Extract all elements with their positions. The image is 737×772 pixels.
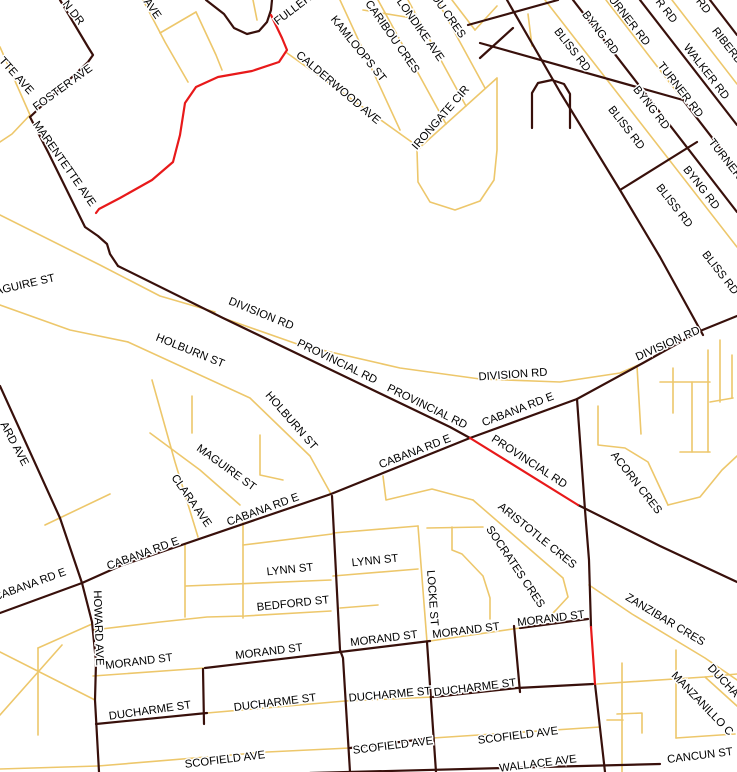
street-label: LOCKE ST <box>424 570 440 627</box>
street-label: FOSTER AVE <box>31 62 95 113</box>
road-u-inner <box>253 0 257 20</box>
road-clara-spur <box>45 494 110 525</box>
street-label: SCOFIELD AVE <box>184 749 266 771</box>
road-acorn-k <box>710 398 733 402</box>
street-label: PROVINCIAL RD <box>385 382 469 431</box>
street-label: MARENTETTE AVE <box>30 119 98 209</box>
street-label: DIVISION RD <box>227 295 296 332</box>
street-label: CLARA AVE <box>169 472 214 529</box>
street-label: OU CRES <box>428 0 468 41</box>
road-u-stub <box>532 80 570 128</box>
street-label: BLISS RD <box>551 26 592 74</box>
road-cabana-stub <box>383 476 473 500</box>
street-label: RIBERD <box>709 25 737 66</box>
road-perp-1 <box>468 0 558 25</box>
road-howard-n <box>0 386 82 583</box>
map-canvas[interactable]: N DRAVETTE AVEFOSTER AVEMARENTETTE AVEFU… <box>0 0 737 772</box>
street-label: CABANA RD E <box>377 433 453 472</box>
street-label: DUCHARME ST <box>348 685 432 704</box>
road-conn-e <box>427 527 483 528</box>
road-red-fuller <box>96 15 287 213</box>
street-label: LYNN ST <box>266 562 314 579</box>
street-label: PROVINCIAL RD <box>489 433 569 491</box>
street-label: BLISS RD <box>653 182 694 230</box>
road-provincial-se <box>578 505 737 582</box>
road-holburn-s-vert <box>332 496 350 772</box>
road-lynn2 <box>333 569 418 576</box>
street-label: MORAND ST <box>105 652 174 672</box>
road-bl-diag2 <box>0 645 62 715</box>
road-socrates <box>452 527 490 619</box>
road-wallace <box>310 764 660 772</box>
road-acorn-b <box>668 456 737 505</box>
street-label: AGUIRE ST <box>0 272 56 297</box>
road-vert-203 <box>203 669 204 724</box>
street-label: BYNG RD <box>579 9 620 57</box>
street-label: WALLACE AVE <box>499 753 578 772</box>
road-stub-642 <box>617 713 642 733</box>
labels-layer: N DRAVETTE AVEFOSTER AVEMARENTETTE AVEFU… <box>0 0 737 772</box>
street-label: DUCHARME ST <box>433 677 517 699</box>
street-label: BLISS RD <box>605 104 646 152</box>
street-label: SCOFIELD AVE <box>477 725 559 747</box>
road-scofield-ww <box>0 766 98 769</box>
street-label: CABANA RD E <box>105 535 181 572</box>
map-viewport[interactable]: N DRAVETTE AVEFOSTER AVEMARENTETTE AVEFU… <box>0 0 737 772</box>
road-division-provincial <box>118 266 470 438</box>
street-label: BEDFORD ST <box>256 594 330 614</box>
road-byng-conn <box>620 142 697 190</box>
street-label: DUCHARME ST <box>233 692 317 714</box>
road-lynn1 <box>186 580 331 586</box>
street-label: CABANA RD E <box>225 491 301 528</box>
street-label: MORAND ST <box>432 621 501 641</box>
street-label: MAGUIRE ST <box>194 442 258 493</box>
road-tl-conn <box>160 12 196 33</box>
road-bl-diag3 <box>38 624 92 648</box>
road-fuller-u <box>206 0 272 34</box>
street-label: AVE <box>141 0 164 22</box>
road-boundary <box>507 0 703 335</box>
road-maguire-w2 <box>0 305 128 342</box>
street-label: TURNER <box>706 137 737 181</box>
road-vert-grand-n <box>577 399 591 627</box>
road-tl-diag2 <box>196 12 222 70</box>
street-label: CANCUN ST <box>667 746 734 766</box>
street-label: LYNN ST <box>351 553 399 570</box>
road-stub-260 <box>260 435 283 480</box>
street-label: HOLBURN ST <box>263 390 320 453</box>
street-label: CABANA RD E <box>0 566 68 603</box>
road-clara <box>152 380 198 537</box>
street-label: MORAND ST <box>517 609 586 629</box>
street-label: RD <box>693 0 713 16</box>
street-label: ZANZIBAR CRES <box>623 592 707 649</box>
road-bl-diag1 <box>0 652 95 700</box>
road-acorn-c <box>637 366 641 434</box>
street-label: HOWARD AVE <box>91 590 106 666</box>
road-red-provincial <box>470 438 578 505</box>
street-label: DIVISION RD <box>634 324 702 363</box>
road-conn-530 <box>333 526 418 533</box>
road-perp-2 <box>480 28 513 58</box>
street-label: MORAND ST <box>235 642 304 662</box>
street-label: HOLBURN ST <box>154 332 226 370</box>
street-label: PROVINCIAL RD <box>295 337 379 386</box>
road-conn-540 <box>243 534 332 545</box>
street-label: IRONGATE CIR <box>410 84 472 153</box>
street-label: FULLER <box>272 0 314 28</box>
street-label: BLISS RD <box>699 249 737 297</box>
road-bedford <box>93 611 331 630</box>
road-tte-s <box>0 115 30 142</box>
road-red-grand <box>591 627 595 684</box>
street-label: BYNG RD <box>680 164 721 212</box>
street-label: ACORN CRES <box>608 450 664 517</box>
street-label: TTE AVE <box>0 55 36 97</box>
road-locke-s-vert <box>427 642 436 772</box>
road-bedford-stub <box>340 605 378 608</box>
street-label: SCOFIELD AVE <box>352 735 434 757</box>
